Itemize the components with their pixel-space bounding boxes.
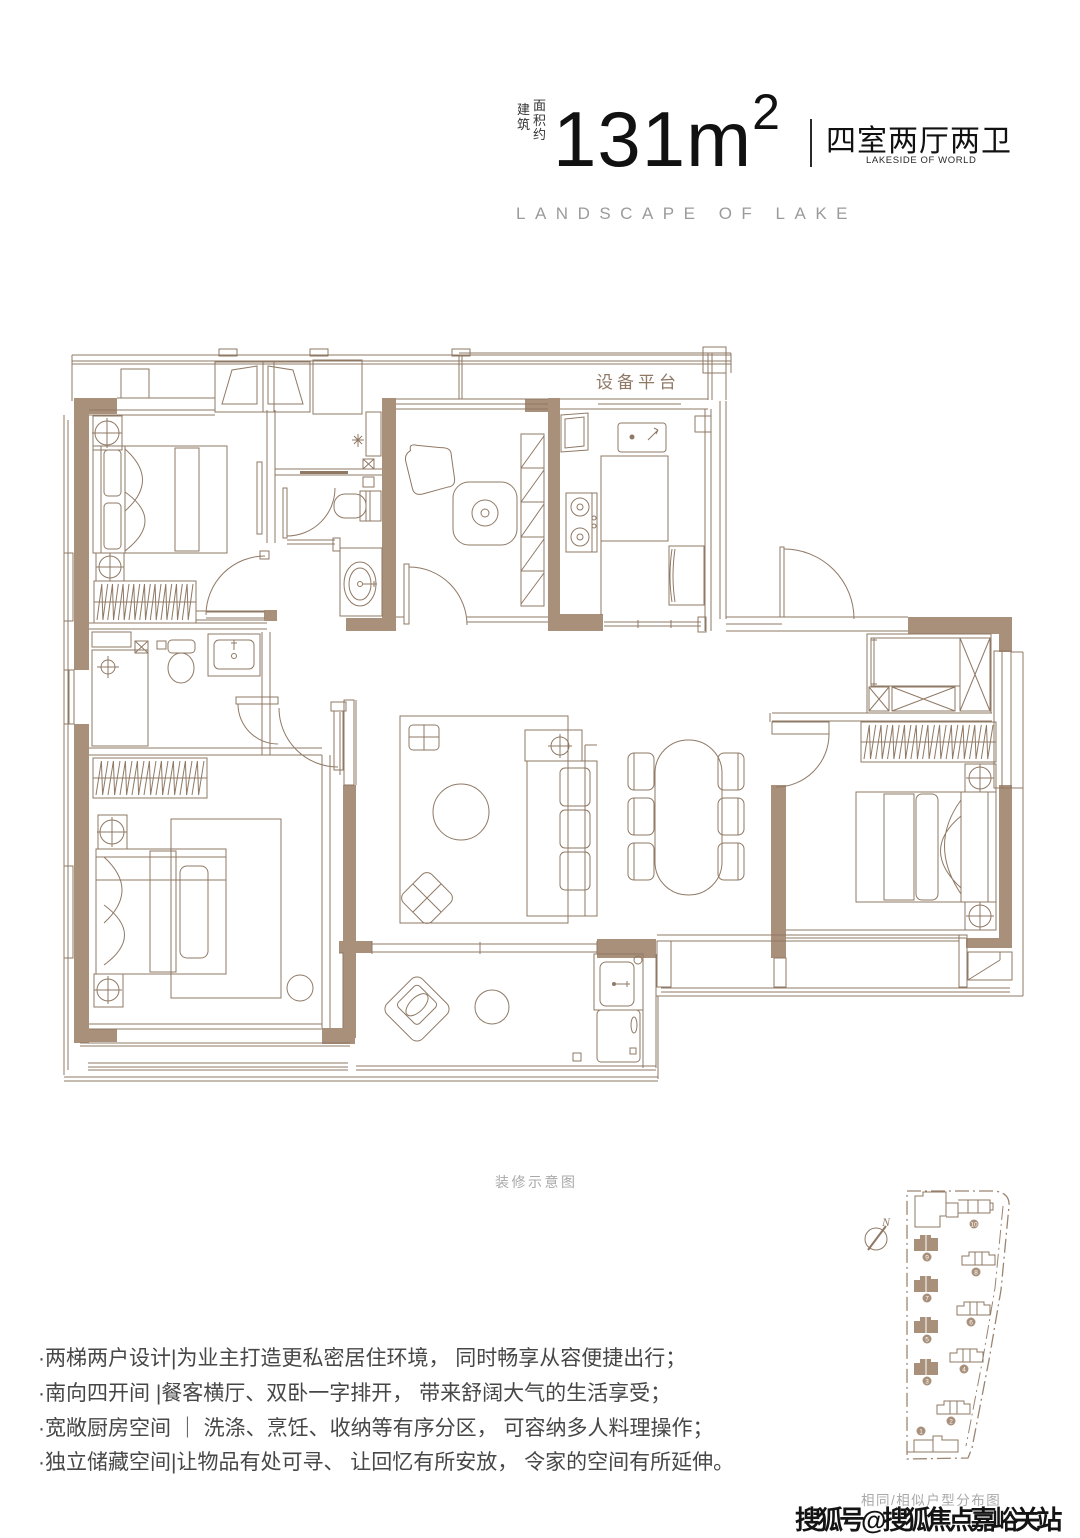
svg-text:2: 2 [949, 1419, 953, 1426]
svg-text:N: N [881, 1215, 891, 1229]
svg-text:3: 3 [925, 1379, 929, 1386]
svg-text:1: 1 [919, 1429, 923, 1436]
svg-text:5: 5 [925, 1337, 929, 1344]
svg-text:8: 8 [974, 1270, 978, 1277]
svg-text:10: 10 [970, 1222, 978, 1229]
svg-text:设备平台: 设备平台 [596, 373, 680, 392]
svg-text:6: 6 [969, 1320, 973, 1327]
svg-text:7: 7 [925, 1296, 929, 1303]
svg-text:4: 4 [962, 1367, 966, 1374]
svg-text:9: 9 [925, 1255, 929, 1262]
